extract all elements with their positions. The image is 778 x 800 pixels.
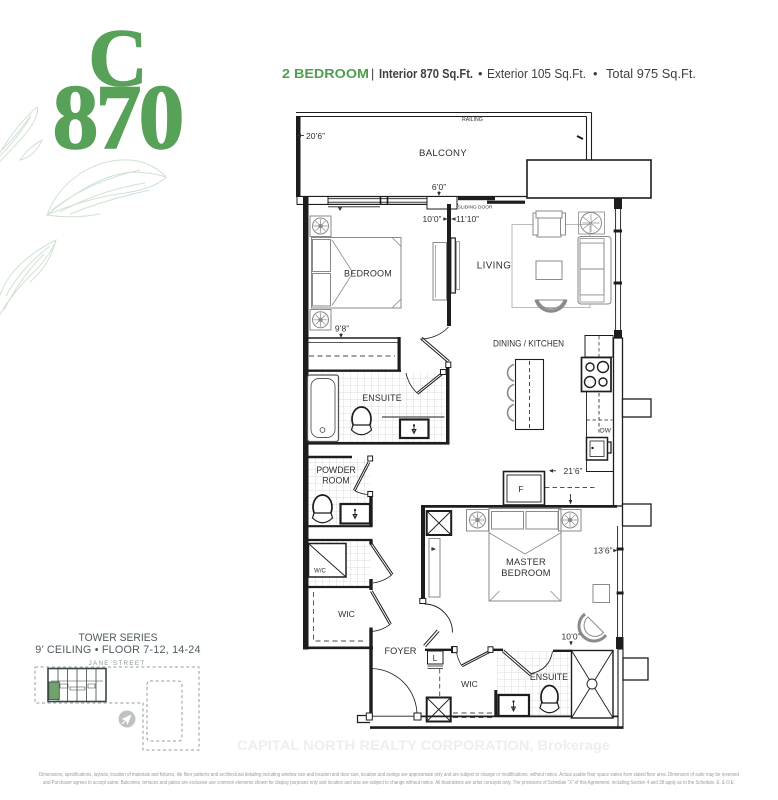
- svg-text:6’0”: 6’0”: [432, 182, 446, 192]
- svg-text:and Purchaser agrees to accept: and Purchaser agrees to accept same. Bal…: [43, 780, 735, 786]
- svg-text:ENSUITE: ENSUITE: [362, 393, 402, 403]
- svg-text:ENSUITE: ENSUITE: [530, 672, 568, 682]
- svg-text:ROOM: ROOM: [322, 476, 349, 486]
- svg-text:Exterior 105 Sq.Ft.: Exterior 105 Sq.Ft.: [487, 66, 586, 81]
- svg-text:F: F: [518, 484, 523, 494]
- svg-text:21’6”: 21’6”: [564, 466, 583, 476]
- svg-text:BALCONY: BALCONY: [419, 148, 467, 159]
- svg-text:POWDER: POWDER: [316, 465, 356, 475]
- svg-text:DINING / KITCHEN: DINING / KITCHEN: [493, 339, 564, 349]
- svg-text:JANE STREET: JANE STREET: [89, 660, 146, 667]
- svg-text:10’0”: 10’0”: [562, 632, 581, 642]
- svg-text:Total 975 Sq.Ft.: Total 975 Sq.Ft.: [606, 66, 696, 81]
- svg-text:BEDROOM: BEDROOM: [501, 568, 550, 578]
- svg-text:MASTER: MASTER: [506, 557, 546, 567]
- svg-text:LIVING: LIVING: [477, 261, 512, 272]
- svg-text:WIC: WIC: [338, 609, 355, 619]
- svg-text:SLIDING DOOR: SLIDING DOOR: [458, 205, 493, 211]
- svg-text:FOYER: FOYER: [384, 646, 416, 656]
- svg-text:Interior 870 Sq.Ft.: Interior 870 Sq.Ft.: [379, 66, 473, 81]
- svg-text:|: |: [371, 67, 374, 81]
- svg-text:Dimensions, specifications, la: Dimensions, specifications, layouts, loc…: [39, 772, 739, 778]
- svg-text:W/C: W/C: [314, 569, 326, 575]
- svg-text:TOWER SERIES: TOWER SERIES: [79, 632, 158, 644]
- svg-text:20’6”: 20’6”: [306, 131, 325, 141]
- svg-text:9’8”: 9’8”: [335, 324, 349, 334]
- svg-text:2 BEDROOM: 2 BEDROOM: [282, 66, 369, 81]
- svg-text:L: L: [433, 653, 438, 663]
- svg-text:11’10”: 11’10”: [456, 214, 479, 224]
- svg-text:10’0”: 10’0”: [423, 214, 442, 224]
- svg-text:13’6”: 13’6”: [594, 546, 613, 556]
- svg-text:WIC: WIC: [461, 679, 478, 689]
- svg-text:DW: DW: [600, 428, 612, 435]
- svg-text:RAILING: RAILING: [462, 117, 483, 123]
- svg-text:•: •: [593, 66, 597, 81]
- svg-text:CAPITAL NORTH REALTY CORPORATI: CAPITAL NORTH REALTY CORPORATION, Broker…: [237, 738, 611, 753]
- svg-text:9’ CEILING • FLOOR 7-12, 14-24: 9’ CEILING • FLOOR 7-12, 14-24: [35, 644, 200, 656]
- svg-text:•: •: [478, 66, 482, 81]
- svg-text:870: 870: [53, 66, 182, 168]
